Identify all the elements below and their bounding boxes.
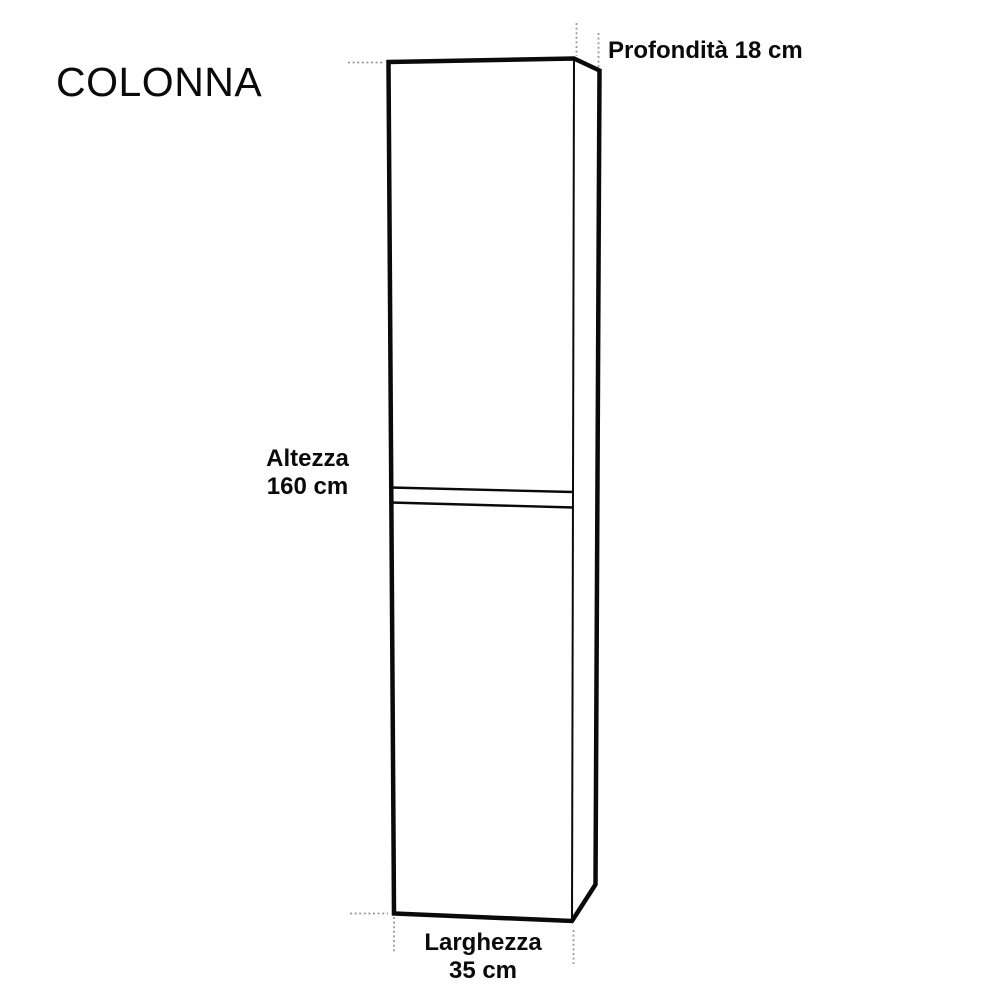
height-label-text: Altezza xyxy=(245,445,370,473)
depth-value-text: 18 cm xyxy=(735,37,803,64)
diagram-canvas: COLONNA Profondità 18 cm Altezza 160 cm … xyxy=(0,0,1000,1000)
width-dimension-label: Larghezza 35 cm xyxy=(383,929,583,986)
cabinet-diagram xyxy=(0,0,1000,1000)
depth-dimension-label: Profondità 18 cm xyxy=(608,37,803,65)
width-value-text: 35 cm xyxy=(383,957,583,985)
width-label-text: Larghezza xyxy=(383,929,583,957)
depth-label-text: Profondità xyxy=(608,37,728,64)
height-dimension-label: Altezza 160 cm xyxy=(245,445,370,502)
diagram-title: COLONNA xyxy=(56,62,262,103)
height-value-text: 160 cm xyxy=(245,473,370,501)
